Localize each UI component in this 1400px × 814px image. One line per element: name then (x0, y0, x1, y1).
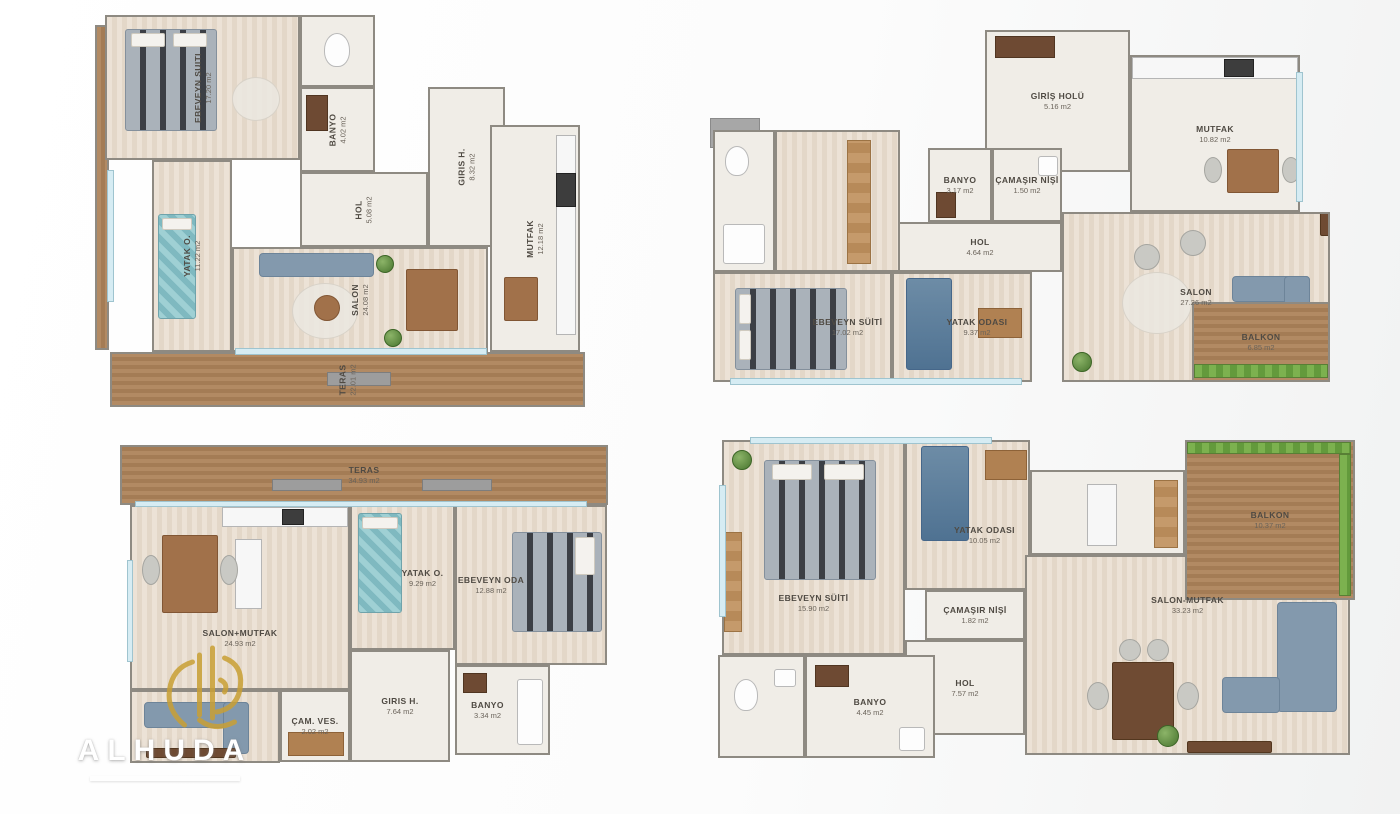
room-area: 10.37 m2 (1251, 521, 1290, 530)
kitchen-island (235, 539, 262, 609)
room-name: BANYO (327, 113, 337, 146)
room-label-group: MUTFAK 10.82 m2 (1196, 124, 1234, 144)
armchair (1180, 230, 1206, 256)
rug (232, 77, 280, 121)
armchair (1134, 244, 1160, 270)
wardrobe (847, 140, 871, 264)
room-label-group: ÇAMAŞIR NİŞİ 1.50 m2 (995, 175, 1058, 195)
daybed (288, 732, 344, 756)
room-area: 3.34 m2 (471, 711, 504, 720)
room-label-group: HOL 7.57 m2 (951, 678, 978, 698)
room-name: BALKON (1242, 332, 1281, 342)
room-area: 33.23 m2 (1151, 606, 1224, 615)
desk (985, 450, 1027, 480)
room-wc (300, 15, 375, 87)
chair (1119, 639, 1141, 661)
room-label-group: MUTFAK 12.18 m2 (525, 220, 545, 258)
sink-vanity (936, 192, 956, 218)
room-name: YATAK O. (402, 568, 444, 578)
room-area: 9.29 m2 (402, 579, 444, 588)
pillow (162, 218, 192, 230)
toilet-fixture (725, 146, 749, 176)
window-marker (135, 501, 587, 507)
room-name: BALKON (1251, 510, 1290, 520)
room-banyo: BANYO 3.34 m2 (455, 665, 550, 755)
alhuda-watermark: ALHUDA (60, 640, 270, 781)
room-name: GİRİŞ HOLÜ (1031, 91, 1085, 101)
watermark-subtitle (90, 776, 240, 781)
corner-sofa (1277, 602, 1337, 712)
room-yatak-o: YATAK O. 11.22 m2 (152, 160, 232, 352)
room-ebeveyn-suiti: EBEVEYN SUITI 17.20 m2 (105, 15, 300, 160)
room-area: 1.50 m2 (995, 186, 1058, 195)
room-name: HOL (354, 196, 364, 223)
room-name: ÇAMAŞIR NİŞİ (943, 605, 1006, 615)
room-area: 8.32 m2 (468, 148, 477, 185)
room-wc (718, 655, 805, 758)
appliance (556, 173, 576, 207)
room-area: 6.85 m2 (1242, 343, 1281, 352)
room-area: 10.82 m2 (1196, 135, 1234, 144)
room-name: ÇAMAŞIR NİŞİ (995, 175, 1058, 185)
bed (735, 288, 847, 370)
room-name: TERAS (348, 465, 379, 475)
room-label-group: BALKON 6.85 m2 (1242, 332, 1281, 352)
room-label-group: HOL 4.64 m2 (966, 237, 993, 257)
room-name: BANYO (944, 175, 977, 185)
room-name: HOL (951, 678, 978, 688)
room-camasir-nisi: ÇAMAŞIR NİŞİ 1.82 m2 (925, 590, 1025, 640)
room-label-group: EBEVEYN SÜİTİ 15.90 m2 (779, 593, 849, 613)
entry-cabinet (995, 36, 1055, 58)
tv-unit (1187, 741, 1272, 753)
pillow (772, 464, 812, 480)
room-name: SALON+MUTFAK (203, 628, 278, 638)
planter-strip (1194, 364, 1328, 378)
room-area: 24.08 m2 (361, 284, 370, 316)
room-yatak-odasi: YATAK ODASI 10.05 m2 (905, 440, 1030, 590)
room-name: MUTFAK (1196, 124, 1234, 134)
room-balkon: BALKON 10.37 m2 (1185, 440, 1355, 600)
room-area: 12.18 m2 (536, 220, 545, 258)
chair (220, 555, 238, 585)
toilet-fixture (324, 33, 350, 67)
room-area: 15.90 m2 (779, 604, 849, 613)
room-mutfak: MUTFAK 10.82 m2 (1130, 55, 1300, 212)
room-giris-h: GIRIS H. 7.64 m2 (350, 650, 450, 762)
room-area: 5.08 m2 (365, 196, 374, 223)
plant (1157, 725, 1179, 747)
room-name: EBEVEYN SÜİTİ (779, 593, 849, 603)
rug (1122, 272, 1192, 334)
room-name: MUTFAK (525, 220, 535, 258)
room-area: 34.93 m2 (348, 476, 379, 485)
dining-table (1320, 212, 1330, 236)
room-balkon: BALKON 6.85 m2 (1192, 302, 1330, 382)
single-bed (921, 446, 969, 541)
room-yatak-odasi: YATAK ODASI 9.37 m2 (892, 272, 1032, 382)
floor-plan-top-left: EBEVEYN SUITI 17.20 m2 BANYO 4.02 m2 GIR… (95, 10, 600, 410)
toilet-fixture (734, 679, 758, 711)
bathtub (517, 679, 543, 745)
room-ebeveyn-suiti: EBEVEYN SÜİTİ 17.02 m2 (713, 272, 892, 382)
room-area: 4.45 m2 (854, 708, 887, 717)
room-area: 4.02 m2 (338, 113, 347, 146)
kitchen-island (1087, 484, 1117, 546)
floor-plans-canvas: EBEVEYN SUITI 17.20 m2 BANYO 4.02 m2 GIR… (0, 0, 1400, 814)
window-marker (1296, 72, 1303, 202)
room-dressing (775, 130, 900, 272)
room-label-group: YATAK O. 9.29 m2 (402, 568, 444, 588)
plant (1072, 352, 1092, 372)
chair (1147, 639, 1169, 661)
chair (142, 555, 160, 585)
room-ebeveyn-suiti: EBEVEYN SÜİTİ 15.90 m2 (722, 440, 905, 655)
room-label-group: GİRİŞ HOLÜ 5.16 m2 (1031, 91, 1085, 111)
room-name: GIRIS H. (381, 696, 418, 706)
room-camasir-nisi: ÇAMAŞIR NİŞİ 1.50 m2 (992, 148, 1062, 222)
chair (1177, 682, 1199, 710)
dining-table (162, 535, 218, 613)
room-label-group: BANYO 3.34 m2 (471, 700, 504, 720)
room-ebeveyn-oda: EBEVEYN ODA 12.88 m2 (455, 505, 607, 665)
window-marker (750, 437, 992, 444)
chair (1087, 682, 1109, 710)
washer (1038, 156, 1058, 176)
room-cam-ves: ÇAM. VES. 2.02 m2 (280, 690, 350, 762)
kitchen-table (1227, 149, 1279, 193)
plant (384, 329, 402, 347)
floor-plan-top-right: GİRİŞ HOLÜ 5.16 m2 MUTFAK 10.82 m2 (710, 10, 1350, 395)
room-label-group: GIRIS H. 8.32 m2 (457, 148, 477, 185)
window-marker (107, 170, 114, 302)
room-label-group: BANYO 4.45 m2 (854, 697, 887, 717)
dining-table (406, 269, 458, 331)
window-marker (235, 348, 487, 355)
planter-strip (1339, 454, 1351, 596)
floor-plan-bottom-right: EBEVEYN SÜİTİ 15.90 m2 YATAK ODASI 10.05… (710, 435, 1355, 765)
room-salon: SALON 24.08 m2 (232, 247, 488, 352)
room-name: BANYO (471, 700, 504, 710)
room-hol: HOL 5.08 m2 (300, 172, 428, 247)
washer (899, 727, 925, 751)
room-name: HOL (966, 237, 993, 247)
room-label-group: TERAS 34.93 m2 (348, 465, 379, 485)
room-area: 4.64 m2 (966, 248, 993, 257)
planter-strip (1187, 442, 1351, 454)
coffee-table (314, 295, 340, 321)
chair (1204, 157, 1222, 183)
window-marker (719, 485, 726, 617)
pillow (173, 33, 207, 47)
room-yatak-o: YATAK O. 9.29 m2 (350, 505, 455, 650)
sink (774, 669, 796, 687)
pillow (575, 537, 595, 575)
kitchen-counter (556, 135, 576, 335)
room-teras: TERAS 22.01 m2 (110, 352, 585, 407)
room-banyo: BANYO 4.02 m2 (300, 87, 375, 172)
room-banyo: BANYO 4.45 m2 (805, 655, 935, 758)
pillow (362, 517, 398, 529)
sink-vanity (306, 95, 328, 131)
room-label-group: BANYO 4.02 m2 (327, 113, 347, 146)
room-label-group: GIRIS H. 7.64 m2 (381, 696, 418, 716)
room-mutfak: MUTFAK 12.18 m2 (490, 125, 580, 352)
room-area: 7.57 m2 (951, 689, 978, 698)
room-label-group: BALKON 10.37 m2 (1251, 510, 1290, 530)
pillow (739, 294, 751, 324)
room-area: 7.64 m2 (381, 707, 418, 716)
alhuda-emblem-icon (152, 640, 267, 740)
room-bath-ensuite (713, 130, 775, 272)
bench (272, 479, 342, 491)
bench (422, 479, 492, 491)
single-bed (906, 278, 952, 370)
room-area: 1.82 m2 (943, 616, 1006, 625)
room-area: 5.16 m2 (1031, 102, 1085, 111)
bench (327, 372, 391, 386)
pillow (739, 330, 751, 360)
sink-vanity (815, 665, 849, 687)
pillow (824, 464, 864, 480)
wardrobe (724, 532, 742, 632)
sofa (259, 253, 374, 277)
room-banyo: BANYO 3.17 m2 (928, 148, 992, 222)
kitchen-table (504, 277, 538, 321)
room-hol: HOL 4.64 m2 (898, 222, 1062, 272)
room-label-group: ÇAMAŞIR NİŞİ 1.82 m2 (943, 605, 1006, 625)
kitchen-counter (1132, 57, 1298, 79)
pillow (131, 33, 165, 47)
desk (978, 308, 1022, 338)
room-teras: TERAS 34.93 m2 (120, 445, 608, 505)
sink-vanity (463, 673, 487, 693)
room-name: ÇAM. VES. (291, 716, 338, 726)
window-marker (730, 378, 1022, 385)
bathtub (723, 224, 765, 264)
stove (1224, 59, 1254, 77)
corner-sofa (1222, 677, 1280, 713)
plant (376, 255, 394, 273)
room-name: BANYO (854, 697, 887, 707)
room-name: GIRIS H. (457, 148, 467, 185)
room-kitchen-area (1030, 470, 1185, 555)
plant (732, 450, 752, 470)
stove (282, 509, 304, 525)
tall-cabinet (1154, 480, 1178, 548)
room-label-group: HOL 5.08 m2 (354, 196, 374, 223)
